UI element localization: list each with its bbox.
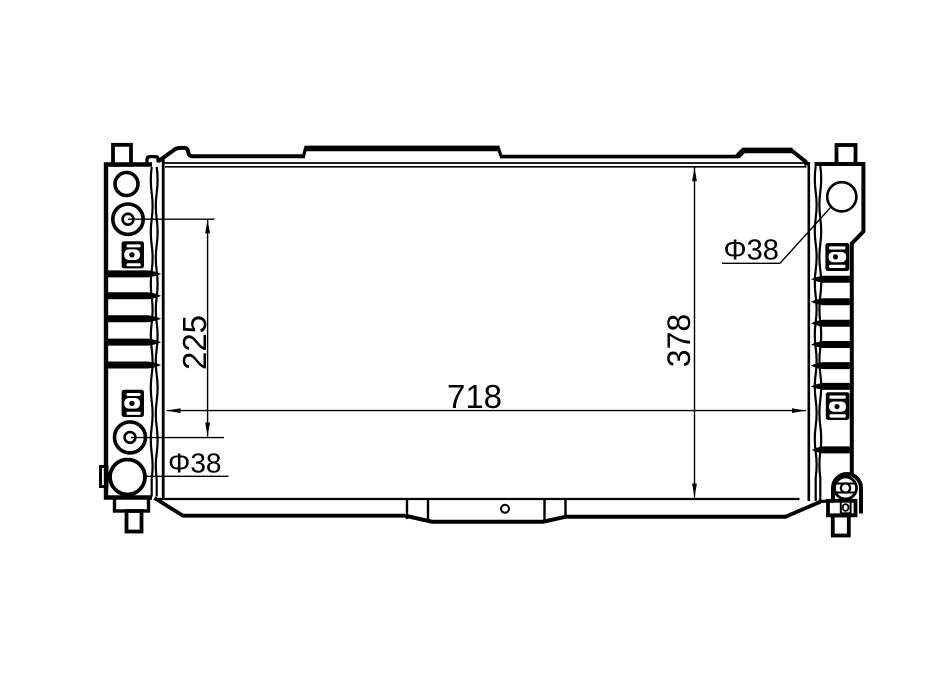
svg-text:225: 225: [176, 315, 213, 370]
svg-text:378: 378: [661, 314, 697, 367]
svg-text:Φ38: Φ38: [168, 448, 221, 479]
svg-text:Φ38: Φ38: [724, 235, 779, 267]
svg-text:718: 718: [447, 378, 502, 415]
